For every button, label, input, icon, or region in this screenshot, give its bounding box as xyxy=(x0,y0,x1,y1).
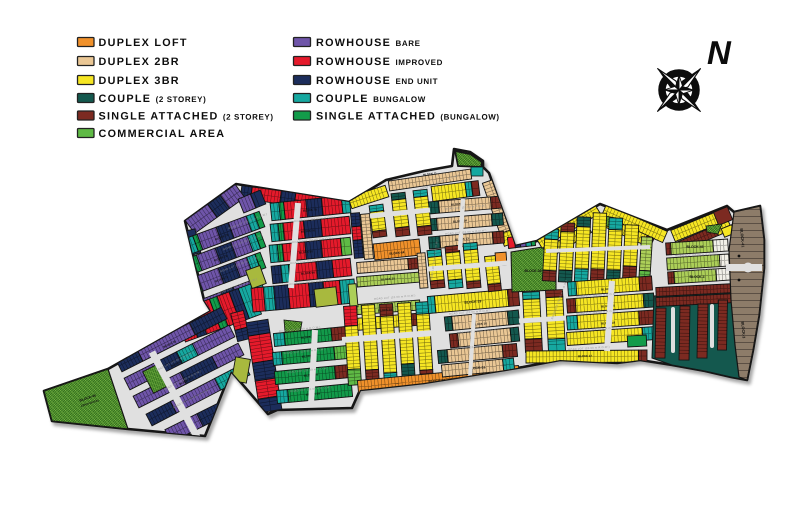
svg-text:BLOCK-43: BLOCK-43 xyxy=(687,245,704,249)
svg-text:DUPLEX 3BR: DUPLEX 3BR xyxy=(98,75,179,87)
svg-text:SINGLE ATTACHED (BUNGALOW): SINGLE ATTACHED (BUNGALOW) xyxy=(316,111,500,123)
svg-text:COMMERCIAL AREA: COMMERCIAL AREA xyxy=(98,128,225,140)
svg-text:SINGLE ATTACHED (2 STOREY): SINGLE ATTACHED (2 STOREY) xyxy=(98,111,273,123)
svg-text:BLOCK-38: BLOCK-38 xyxy=(525,269,542,273)
svg-text:ROWHOUSE END UNIT: ROWHOUSE END UNIT xyxy=(316,75,438,87)
svg-text:DUPLEX LOFT: DUPLEX LOFT xyxy=(98,37,187,49)
svg-text:ROWHOUSE IMPROVED: ROWHOUSE IMPROVED xyxy=(316,56,443,68)
svg-text:N: N xyxy=(707,34,732,71)
svg-text:ROWHOUSE BARE: ROWHOUSE BARE xyxy=(316,37,421,49)
svg-text:BLOCK 17: BLOCK 17 xyxy=(578,354,592,358)
svg-text:COUPLE BUNGALOW: COUPLE BUNGALOW xyxy=(316,93,426,105)
svg-text:BLOCK-3: BLOCK-3 xyxy=(689,275,704,279)
svg-text:COUPLE (2 STOREY): COUPLE (2 STOREY) xyxy=(98,93,206,105)
svg-text:DUPLEX 2BR: DUPLEX 2BR xyxy=(98,56,179,68)
